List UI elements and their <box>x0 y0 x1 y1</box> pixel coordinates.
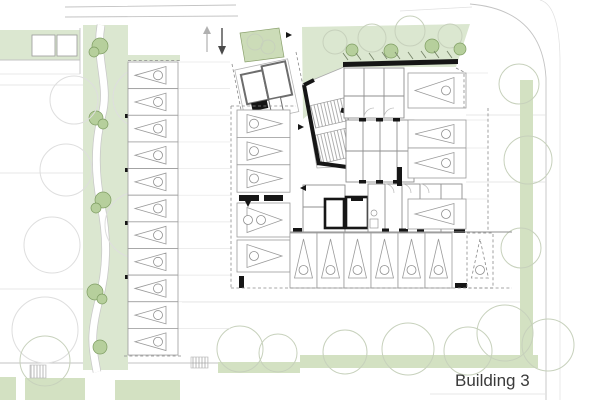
parking-middle-upper <box>237 110 290 192</box>
planting-bed <box>240 28 284 62</box>
parking-stall <box>408 148 488 178</box>
parking-stall <box>290 233 317 288</box>
parking-stall <box>128 275 230 302</box>
parking-stall <box>344 233 371 288</box>
parking-stall <box>398 233 425 288</box>
parking-middle-lower <box>237 203 290 272</box>
door-marker-icon <box>286 32 292 38</box>
parking-stall <box>128 248 230 275</box>
parking-stall <box>128 302 230 329</box>
plan-canvas: Building 3 <box>0 0 600 400</box>
parking-stall <box>128 328 230 355</box>
parking-stall <box>371 233 398 288</box>
neighbor-building <box>0 28 80 74</box>
parking-stall <box>408 120 488 148</box>
parking-stall <box>425 233 452 288</box>
upper-rooms <box>344 68 404 118</box>
parking-stall <box>317 233 344 288</box>
parking-stall <box>128 222 230 249</box>
ramp-arrows <box>203 26 226 55</box>
storage-rooms <box>346 118 414 184</box>
window <box>32 35 55 56</box>
parking-stall <box>467 233 493 288</box>
elevator-shaft <box>325 199 344 228</box>
site-plan-drawing: Building 3 <box>0 0 600 400</box>
parking-stall <box>237 203 290 237</box>
parking-stall <box>128 89 230 116</box>
window <box>57 35 77 56</box>
parking-stall <box>128 142 230 169</box>
parking-left-column <box>128 62 230 355</box>
parking-stall <box>408 199 488 229</box>
ramp-down-arrow-icon <box>218 28 226 55</box>
parking-bottom-row-dashed <box>467 233 493 288</box>
parking-stall <box>128 195 230 222</box>
parking-stall <box>237 240 290 272</box>
parking-stall <box>237 110 290 137</box>
parking-stall <box>408 73 488 108</box>
parking-right-column <box>408 73 488 229</box>
building-label: Building 3 <box>455 371 530 390</box>
parking-stall <box>237 137 290 164</box>
parking-stall <box>128 115 230 142</box>
ramp-up-arrow-icon <box>203 26 211 52</box>
parking-stall <box>128 169 230 196</box>
parking-bottom-row <box>290 233 452 288</box>
parking-stall <box>237 165 290 192</box>
door-marker-icon <box>298 124 304 130</box>
parking-stall <box>128 62 230 89</box>
elevator-shaft <box>346 197 368 228</box>
